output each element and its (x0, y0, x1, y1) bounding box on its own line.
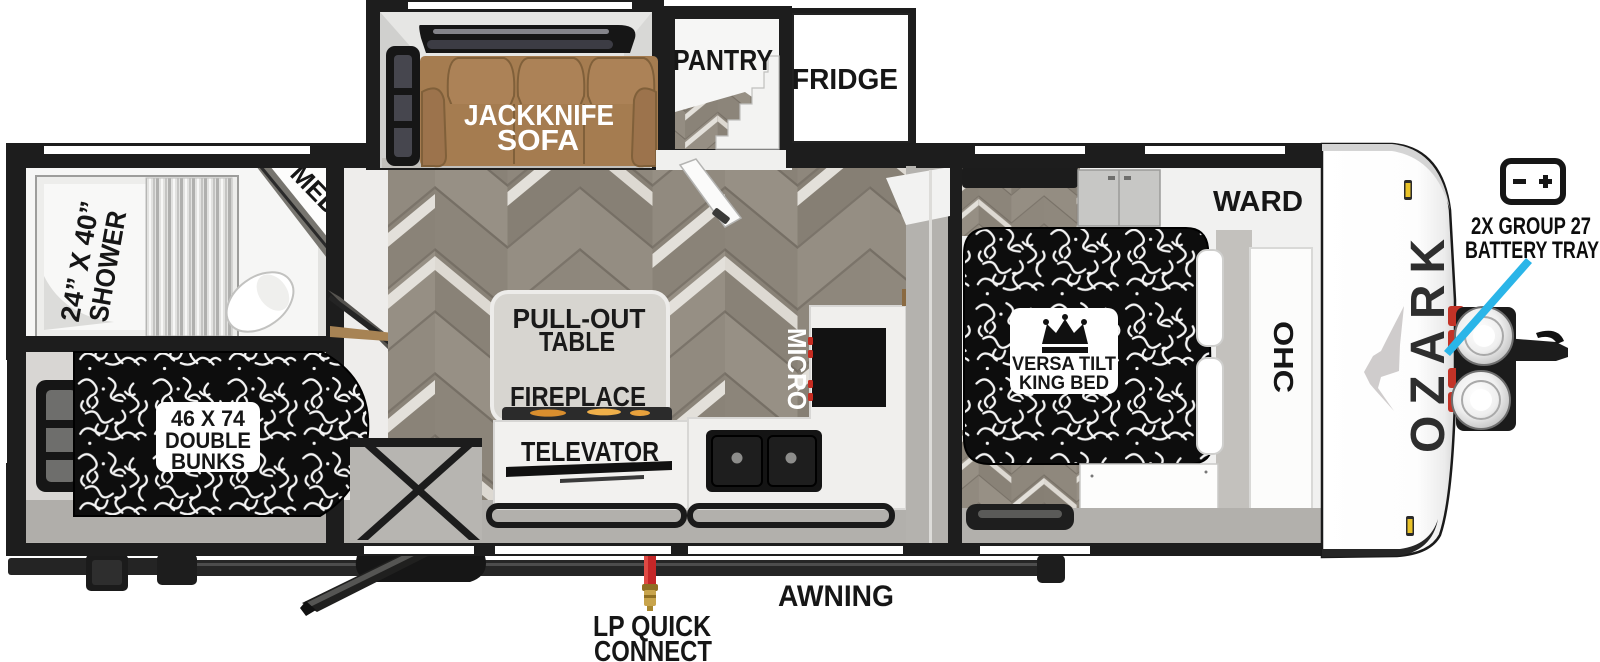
svg-text:SOFA: SOFA (497, 125, 579, 157)
svg-text:MICRO: MICRO (782, 328, 812, 410)
svg-text:KING BED: KING BED (1019, 373, 1109, 394)
svg-text:CONNECT: CONNECT (594, 636, 712, 662)
svg-text:OZARK: OZARK (1402, 239, 1455, 453)
svg-text:BATTERY TRAY: BATTERY TRAY (1465, 237, 1599, 264)
svg-text:2X GROUP 27: 2X GROUP 27 (1471, 213, 1591, 240)
svg-text:AWNING: AWNING (778, 580, 894, 613)
svg-text:FRIDGE: FRIDGE (792, 64, 898, 96)
svg-text:PANTRY: PANTRY (673, 45, 773, 77)
svg-text:TABLE: TABLE (539, 326, 615, 357)
svg-text:BUNKS: BUNKS (171, 449, 245, 474)
svg-text:OHC: OHC (1268, 321, 1299, 393)
svg-text:WARD: WARD (1213, 186, 1303, 218)
svg-text:VERSA TILT: VERSA TILT (1012, 354, 1116, 375)
